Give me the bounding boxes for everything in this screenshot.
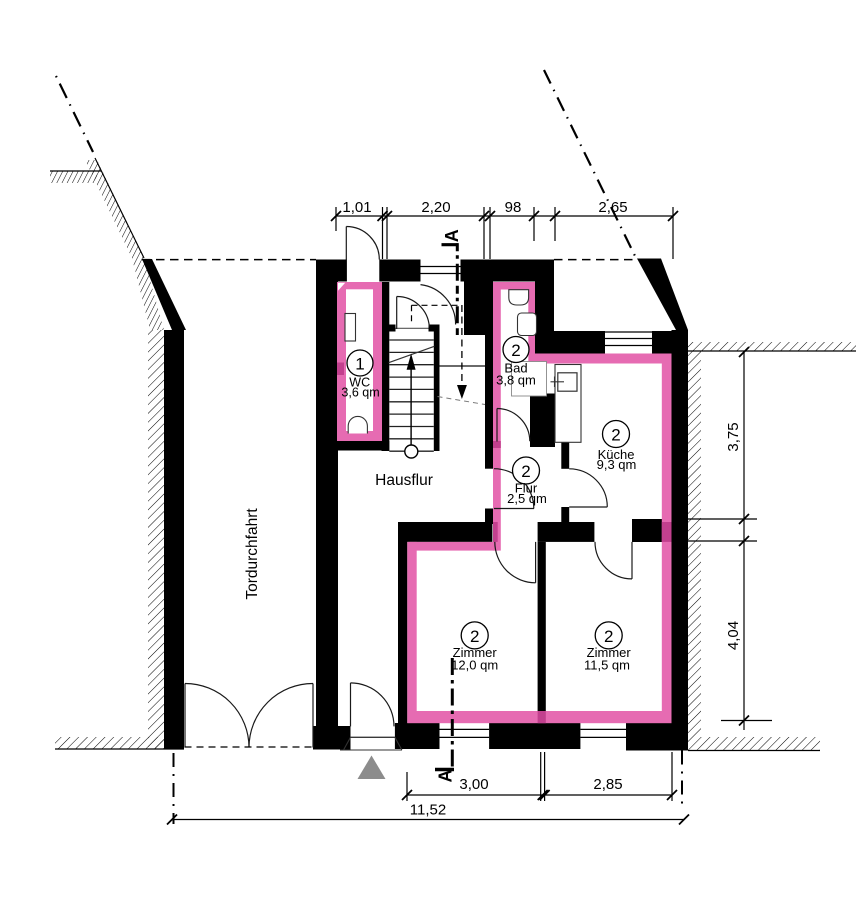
svg-text:2,65: 2,65 [598,199,627,216]
svg-text:12,0 qm: 12,0 qm [451,657,498,672]
svg-text:A: A [442,229,462,242]
svg-text:2: 2 [470,627,479,646]
svg-text:98: 98 [505,199,522,216]
svg-text:4,04: 4,04 [725,621,742,650]
svg-text:3,75: 3,75 [725,422,742,451]
svg-text:11,52: 11,52 [410,802,446,819]
svg-text:2,5 qm: 2,5 qm [507,491,547,506]
svg-text:3,8 qm: 3,8 qm [496,372,536,387]
svg-text:9,3 qm: 9,3 qm [597,457,637,472]
svg-text:Tordurchfahrt: Tordurchfahrt [244,508,261,600]
svg-text:1: 1 [355,355,364,374]
svg-text:1,01: 1,01 [342,199,371,216]
svg-text:2: 2 [511,341,520,360]
svg-text:3,00: 3,00 [459,776,488,793]
svg-text:3,6 qm: 3,6 qm [341,385,379,399]
svg-text:2: 2 [604,627,613,646]
svg-text:2,85: 2,85 [593,776,622,793]
svg-text:A: A [435,770,455,783]
svg-text:11,5 qm: 11,5 qm [584,657,630,672]
svg-text:2: 2 [521,462,530,481]
svg-text:2: 2 [611,426,620,445]
svg-text:Hausflur: Hausflur [375,472,433,489]
svg-text:2,20: 2,20 [421,199,450,216]
